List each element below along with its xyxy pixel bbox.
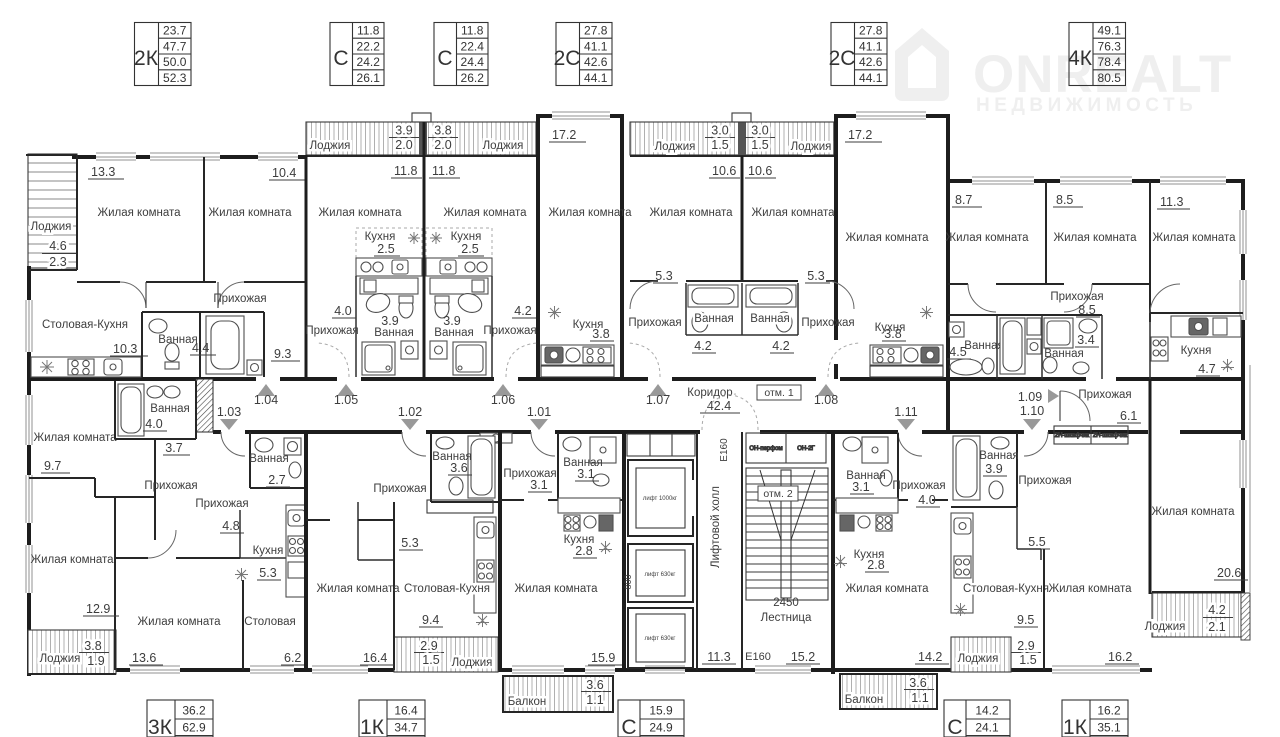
svg-text:Жилая комната: Жилая комната — [945, 232, 1029, 244]
svg-text:14.2: 14.2 — [975, 704, 999, 718]
svg-text:17.2: 17.2 — [848, 128, 872, 142]
svg-text:1.1: 1.1 — [586, 693, 603, 707]
svg-text:Лифтовой холл: Лифтовой холл — [710, 486, 722, 568]
svg-text:11.8: 11.8 — [394, 164, 417, 178]
svg-text:2.8: 2.8 — [867, 558, 884, 572]
svg-text:42.4: 42.4 — [707, 399, 731, 413]
svg-text:Ванная: Ванная — [694, 313, 733, 325]
svg-text:800: 800 — [623, 574, 633, 589]
svg-text:Лоджия: Лоджия — [452, 657, 493, 669]
svg-text:2.0: 2.0 — [434, 138, 451, 152]
svg-text:24.4: 24.4 — [461, 55, 485, 69]
svg-text:Лоджия: Лоджия — [40, 653, 81, 665]
svg-text:Столовая: Столовая — [244, 616, 295, 628]
svg-text:16.4: 16.4 — [394, 704, 418, 718]
svg-text:Кухня: Кухня — [1181, 345, 1212, 357]
svg-text:Жилая комната: Жилая комната — [649, 207, 733, 219]
svg-text:2.8: 2.8 — [575, 544, 592, 558]
svg-text:Лоджия: Лоджия — [791, 141, 832, 153]
svg-text:16.2: 16.2 — [1108, 650, 1132, 664]
svg-text:2Н-шкафчик: 2Н-шкафчик — [1093, 433, 1128, 439]
svg-text:Жилая комната: Жилая комната — [1048, 583, 1132, 595]
svg-text:1.04: 1.04 — [254, 393, 278, 407]
svg-text:1.01: 1.01 — [527, 405, 551, 419]
svg-text:26.1: 26.1 — [357, 71, 381, 85]
svg-text:4.0: 4.0 — [334, 304, 351, 318]
svg-text:2.9: 2.9 — [420, 639, 437, 653]
svg-text:49.1: 49.1 — [1098, 24, 1122, 38]
svg-text:Балкон: Балкон — [845, 694, 884, 706]
svg-text:Жилая комната: Жилая комната — [30, 554, 114, 566]
svg-text:2Н-шкафчик: 2Н-шкафчик — [1055, 433, 1090, 439]
svg-text:Ванная: Ванная — [979, 450, 1018, 462]
svg-text:2.3: 2.3 — [49, 255, 66, 269]
svg-text:Е160: Е160 — [745, 651, 771, 663]
svg-text:Жилая комната: Жилая комната — [97, 207, 181, 219]
svg-text:3.9: 3.9 — [381, 314, 398, 328]
svg-text:1К: 1К — [360, 716, 385, 737]
svg-text:ОН-перфом: ОН-перфом — [749, 446, 782, 452]
svg-text:Прихожая: Прихожая — [144, 480, 197, 492]
svg-text:8.7: 8.7 — [955, 193, 972, 207]
svg-text:15.2: 15.2 — [791, 650, 815, 664]
svg-text:С: С — [947, 716, 962, 737]
svg-text:4.0: 4.0 — [918, 493, 935, 507]
svg-text:42.6: 42.6 — [584, 55, 608, 69]
svg-text:47.7: 47.7 — [163, 39, 187, 53]
svg-text:11.8: 11.8 — [357, 24, 380, 38]
svg-text:3.4: 3.4 — [1077, 333, 1094, 347]
svg-text:С: С — [333, 47, 348, 70]
svg-text:15.9: 15.9 — [649, 704, 673, 718]
svg-text:24.9: 24.9 — [649, 721, 673, 735]
svg-text:10.3: 10.3 — [113, 342, 137, 356]
svg-text:Прихожая: Прихожая — [373, 483, 426, 495]
svg-text:11.3: 11.3 — [707, 650, 730, 664]
svg-text:16.4: 16.4 — [363, 651, 387, 665]
svg-text:1.06: 1.06 — [491, 393, 515, 407]
svg-text:Прихожая: Прихожая — [213, 293, 266, 305]
svg-text:Лоджия: Лоджия — [310, 140, 351, 152]
svg-text:9.5: 9.5 — [1017, 613, 1034, 627]
svg-text:С: С — [621, 716, 636, 737]
svg-text:5.5: 5.5 — [1028, 535, 1045, 549]
svg-text:Жилая комната: Жилая комната — [548, 207, 632, 219]
svg-text:4.4: 4.4 — [192, 341, 209, 355]
svg-text:20.6: 20.6 — [1217, 566, 1241, 580]
svg-text:2.5: 2.5 — [377, 242, 394, 256]
svg-text:2.5: 2.5 — [461, 242, 478, 256]
svg-text:3.9: 3.9 — [395, 124, 412, 138]
svg-text:41.1: 41.1 — [859, 39, 883, 53]
svg-text:Ванная: Ванная — [249, 453, 288, 465]
svg-text:2С: 2С — [829, 47, 856, 70]
svg-text:10.6: 10.6 — [712, 164, 736, 178]
svg-text:лифт 1000кг: лифт 1000кг — [643, 496, 678, 502]
svg-text:3.8: 3.8 — [884, 327, 901, 341]
svg-text:Столовая-Кухня: Столовая-Кухня — [404, 583, 490, 595]
svg-text:3.9: 3.9 — [985, 462, 1002, 476]
svg-text:Ванная: Ванная — [750, 313, 789, 325]
svg-text:3.1: 3.1 — [530, 478, 547, 492]
svg-text:ОН-2Г: ОН-2Г — [797, 446, 815, 452]
svg-text:1.09: 1.09 — [1018, 390, 1042, 404]
svg-text:44.1: 44.1 — [584, 71, 608, 85]
svg-text:3.7: 3.7 — [165, 441, 182, 455]
svg-text:36.2: 36.2 — [182, 704, 206, 718]
svg-text:80.5: 80.5 — [1098, 71, 1122, 85]
svg-text:78.4: 78.4 — [1098, 55, 1122, 69]
svg-text:3.0: 3.0 — [711, 124, 728, 138]
svg-text:27.8: 27.8 — [859, 24, 883, 38]
svg-text:2.7: 2.7 — [268, 473, 285, 487]
svg-text:Прихожая: Прихожая — [483, 325, 536, 337]
svg-text:3.6: 3.6 — [909, 676, 926, 690]
svg-text:35.1: 35.1 — [1097, 721, 1121, 735]
svg-text:Прихожая: Прихожая — [801, 317, 854, 329]
svg-text:1.5: 1.5 — [422, 653, 439, 667]
svg-text:Прихожая: Прихожая — [305, 325, 358, 337]
svg-text:50.0: 50.0 — [163, 55, 187, 69]
svg-text:62.9: 62.9 — [182, 721, 206, 735]
svg-text:Лоджия: Лоджия — [483, 140, 524, 152]
svg-text:Жилая комната: Жилая комната — [316, 583, 400, 595]
svg-text:Ванная: Ванная — [374, 327, 413, 339]
svg-text:5.3: 5.3 — [401, 536, 418, 550]
svg-text:Столовая-Кухня: Столовая-Кухня — [963, 583, 1049, 595]
svg-text:Прихожая: Прихожая — [628, 317, 681, 329]
svg-text:отм. 2: отм. 2 — [763, 488, 792, 500]
svg-text:24.2: 24.2 — [357, 55, 381, 69]
svg-text:Жилая комната: Жилая комната — [208, 207, 292, 219]
svg-text:9.7: 9.7 — [44, 459, 61, 473]
svg-text:1.02: 1.02 — [398, 405, 422, 419]
svg-text:1.5: 1.5 — [711, 138, 728, 152]
svg-text:4.2: 4.2 — [1208, 603, 1225, 617]
svg-text:3.6: 3.6 — [450, 461, 467, 475]
svg-text:3.8: 3.8 — [434, 124, 451, 138]
svg-text:3.0: 3.0 — [751, 124, 768, 138]
svg-text:22.2: 22.2 — [357, 39, 381, 53]
svg-text:42.6: 42.6 — [859, 55, 883, 69]
svg-text:Прихожая: Прихожая — [1050, 291, 1103, 303]
svg-text:Ванная: Ванная — [964, 340, 1003, 352]
svg-text:15.9: 15.9 — [591, 651, 615, 665]
svg-text:Балкон: Балкон — [508, 696, 547, 708]
svg-text:С: С — [437, 47, 452, 70]
svg-text:76.3: 76.3 — [1098, 39, 1122, 53]
svg-text:4.6: 4.6 — [49, 239, 66, 253]
svg-text:10.4: 10.4 — [272, 166, 296, 180]
svg-text:16.2: 16.2 — [1097, 704, 1121, 718]
svg-text:1.10: 1.10 — [1020, 404, 1044, 418]
svg-text:Прихожая: Прихожая — [195, 498, 248, 510]
svg-text:11.8: 11.8 — [432, 164, 455, 178]
svg-text:11.3: 11.3 — [1160, 195, 1183, 209]
svg-text:4.0: 4.0 — [145, 417, 162, 431]
svg-text:2.1: 2.1 — [1208, 620, 1225, 634]
svg-text:Прихожая: Прихожая — [1078, 389, 1131, 401]
svg-text:Коридор: Коридор — [687, 387, 732, 399]
svg-text:4.2: 4.2 — [514, 304, 531, 318]
svg-text:1.1: 1.1 — [911, 691, 928, 705]
svg-text:23.7: 23.7 — [163, 24, 187, 38]
svg-text:4.8: 4.8 — [222, 519, 239, 533]
svg-text:Лоджия: Лоджия — [958, 653, 999, 665]
svg-text:отм. 1: отм. 1 — [764, 387, 793, 399]
svg-text:2450: 2450 — [773, 597, 799, 609]
svg-text:1.07: 1.07 — [646, 393, 670, 407]
svg-text:Жилая комната: Жилая комната — [845, 232, 929, 244]
svg-text:Жилая комната: Жилая комната — [1053, 232, 1137, 244]
svg-text:Прихожая: Прихожая — [892, 480, 945, 492]
svg-text:4.7: 4.7 — [1198, 362, 1215, 376]
svg-text:13.3: 13.3 — [91, 165, 115, 179]
svg-text:17.2: 17.2 — [552, 128, 576, 142]
svg-text:Лоджия: Лоджия — [655, 141, 696, 153]
svg-text:2С: 2С — [554, 47, 581, 70]
svg-text:Жилая комната: Жилая комната — [845, 583, 929, 595]
svg-text:34.7: 34.7 — [394, 721, 418, 735]
svg-text:Жилая комната: Жилая комната — [33, 432, 117, 444]
svg-text:41.1: 41.1 — [584, 39, 608, 53]
svg-text:11.8: 11.8 — [461, 24, 484, 38]
svg-text:2.9: 2.9 — [1017, 639, 1034, 653]
svg-text:3.6: 3.6 — [586, 678, 603, 692]
svg-text:10.6: 10.6 — [748, 164, 772, 178]
svg-text:1.5: 1.5 — [751, 138, 768, 152]
svg-text:8.5: 8.5 — [1056, 193, 1073, 207]
svg-text:14.2: 14.2 — [918, 650, 942, 664]
svg-text:1.9: 1.9 — [87, 654, 104, 668]
svg-text:Жилая комната: Жилая комната — [751, 207, 835, 219]
svg-text:9.3: 9.3 — [274, 347, 291, 361]
svg-text:3.8: 3.8 — [84, 639, 101, 653]
svg-text:1.5: 1.5 — [1019, 653, 1036, 667]
svg-text:24.1: 24.1 — [975, 721, 999, 735]
svg-text:Жилая комната: Жилая комната — [514, 583, 598, 595]
svg-text:9.4: 9.4 — [422, 613, 439, 627]
svg-text:Ванная: Ванная — [150, 403, 189, 415]
svg-text:52.3: 52.3 — [163, 71, 187, 85]
svg-text:Жилая комната: Жилая комната — [137, 616, 221, 628]
svg-text:Столовая-Кухня: Столовая-Кухня — [42, 319, 128, 331]
svg-text:3.1: 3.1 — [577, 467, 594, 481]
svg-text:26.2: 26.2 — [461, 71, 485, 85]
svg-text:1К: 1К — [1063, 716, 1088, 737]
svg-text:5.3: 5.3 — [807, 269, 824, 283]
svg-text:Е160: Е160 — [719, 438, 730, 462]
svg-text:лифт 630кг: лифт 630кг — [645, 572, 677, 578]
svg-text:Жилая комната: Жилая комната — [318, 207, 402, 219]
svg-text:Ванная: Ванная — [434, 327, 473, 339]
svg-text:1.05: 1.05 — [334, 393, 358, 407]
svg-text:3.1: 3.1 — [852, 480, 869, 494]
svg-text:12.9: 12.9 — [86, 602, 110, 616]
svg-text:1.08: 1.08 — [814, 393, 838, 407]
svg-text:27.8: 27.8 — [584, 24, 608, 38]
svg-text:13.6: 13.6 — [132, 651, 156, 665]
svg-text:Жилая комната: Жилая комната — [443, 207, 527, 219]
svg-text:3.9: 3.9 — [443, 314, 460, 328]
svg-text:44.1: 44.1 — [859, 71, 883, 85]
svg-text:3К: 3К — [148, 716, 173, 737]
svg-text:1.03: 1.03 — [217, 405, 241, 419]
svg-text:Прихожая: Прихожая — [1018, 475, 1071, 487]
svg-text:Лестница: Лестница — [761, 612, 812, 624]
svg-text:1.11: 1.11 — [894, 405, 917, 419]
svg-text:22.4: 22.4 — [461, 39, 485, 53]
svg-text:лифт 630кг: лифт 630кг — [645, 636, 677, 642]
svg-text:НЕДВИЖИМОСТЬ: НЕДВИЖИМОСТЬ — [976, 95, 1197, 116]
svg-text:5.3: 5.3 — [259, 566, 276, 580]
svg-text:Лоджия: Лоджия — [31, 221, 72, 233]
svg-text:4.2: 4.2 — [772, 339, 789, 353]
svg-text:2.0: 2.0 — [395, 138, 412, 152]
svg-text:4.2: 4.2 — [694, 339, 711, 353]
svg-text:2К: 2К — [134, 47, 159, 70]
svg-text:Лоджия: Лоджия — [1145, 621, 1186, 633]
svg-text:Жилая комната: Жилая комната — [1152, 232, 1236, 244]
svg-text:6.2: 6.2 — [284, 651, 301, 665]
svg-text:4К: 4К — [1068, 47, 1093, 70]
svg-text:Кухня: Кухня — [253, 545, 284, 557]
svg-text:Жилая комната: Жилая комната — [1151, 506, 1235, 518]
svg-text:6.1: 6.1 — [1120, 409, 1137, 423]
svg-text:3.8: 3.8 — [592, 327, 609, 341]
